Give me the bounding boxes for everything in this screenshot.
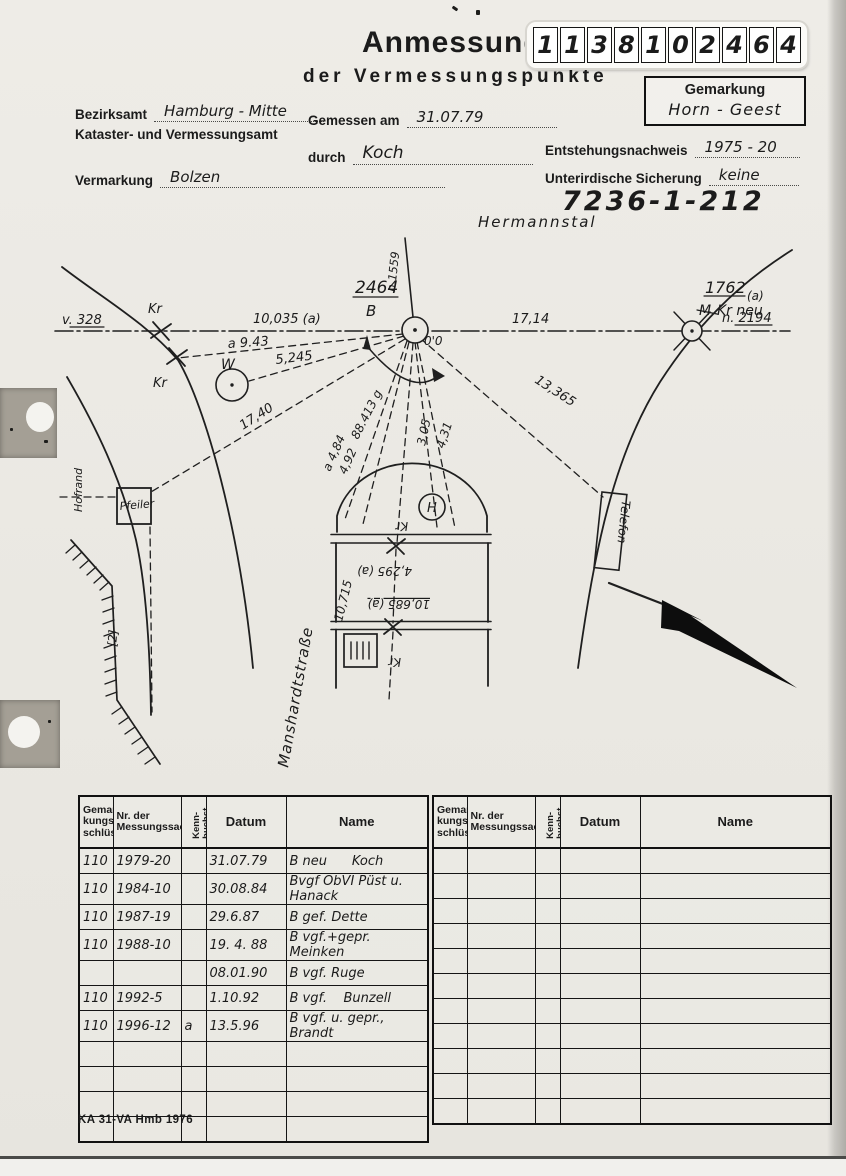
form-title: Anmessung [362, 26, 543, 60]
label-slope-2: [2] [105, 629, 120, 647]
entstehung-field: Entstehungsnachweis 1975 - 20 [545, 138, 800, 158]
label-w: W [221, 357, 236, 373]
label-1762-a: (a) [747, 289, 764, 303]
sicherung-value: keine [709, 166, 799, 186]
col-name: Name [286, 796, 428, 848]
durch-field: durch Koch [308, 143, 533, 165]
label-13365: 13,365 [532, 373, 578, 410]
scan-speck [452, 6, 459, 12]
vermarkung-label: Vermarkung [75, 173, 153, 188]
gemessen-label: Gemessen am [308, 113, 400, 128]
scanned-survey-form: { "header": { "title": "Anmessung", "sub… [0, 0, 846, 1176]
table-row-empty [433, 924, 831, 949]
gemessen-field: Gemessen am 31.07.79 [308, 108, 557, 128]
entstehung-label: Entstehungsnachweis [545, 143, 688, 158]
angle-arrowhead-start [363, 335, 371, 350]
kr-cross-marks [151, 322, 405, 635]
north-arrow-line [609, 583, 668, 606]
vermarkung-value: Bolzen [160, 168, 445, 188]
label-kr-neu: Kr neu [717, 303, 763, 319]
table-row-empty [79, 1067, 428, 1092]
label-431: 4,31 [434, 420, 456, 450]
label-4295: 4,295 (a) [357, 564, 412, 578]
table-row: 1101992-51.10.92B vgf. Bunzell [79, 986, 428, 1011]
digit-cell: 6 [749, 27, 774, 63]
digit-cell: 8 [614, 27, 639, 63]
measurement-table-right: Gemar- kungs- schlüssel Nr. der Messungs… [432, 795, 832, 1125]
table-row-empty [433, 1049, 831, 1074]
point-number-strip: 1 1 3 8 1 0 2 4 6 4 [527, 22, 807, 68]
col-messungssache: Nr. der Messungssache [467, 796, 535, 848]
col-gemarkungsschluessel: Gemar- kungs- schlüssel [433, 796, 467, 848]
sicherung-label: Unterirdische Sicherung [545, 171, 702, 186]
table-row-empty [433, 874, 831, 899]
digit-cell: 1 [560, 27, 585, 63]
table-row-empty [433, 899, 831, 924]
label-kr-lower: Kr [387, 655, 401, 669]
col-kennbuchst: Kenn- buchst. [535, 796, 560, 848]
label-kr-dome: Kr [394, 519, 409, 534]
gemarkung-box: Gemarkung Horn - Geest [644, 76, 806, 126]
label-zero-direction: 0'0 [424, 334, 443, 348]
table-header-row: Gemar- kungs- schlüssel Nr. der Messungs… [433, 796, 831, 848]
vermarkung-field: Vermarkung Bolzen [75, 168, 445, 188]
scan-speck [476, 10, 480, 15]
building-sides-bottom [336, 630, 488, 689]
digit-cell: 3 [587, 27, 612, 63]
angle-arrowhead-end [432, 368, 445, 382]
embankment-line [71, 540, 160, 764]
label-hofrand: Hofrand [72, 467, 85, 512]
digit-cell: 4 [776, 27, 801, 63]
building-wall-lower [331, 622, 491, 630]
label-1762-old: M [699, 303, 711, 319]
label-88413g: 88.413 g [348, 387, 385, 441]
col-datum: Datum [560, 796, 640, 848]
col-datum: Datum [206, 796, 286, 848]
label-telefon: Telefon [615, 500, 633, 544]
form-code: KA 31-VA Hmb 1976 [78, 1114, 193, 1126]
table-row-empty [79, 1092, 428, 1117]
gemarkung-label: Gemarkung [652, 82, 798, 98]
table-row: 1101996-12a13.5.96B vgf. u. gepr., Brand… [79, 1011, 428, 1042]
amt-line: Kataster- und Vermessungsamt [75, 127, 278, 142]
table-row-empty [433, 848, 831, 874]
digit-cell: 2 [695, 27, 720, 63]
durch-label: durch [308, 150, 346, 165]
bezirksamt-value: Hamburg - Mitte [154, 102, 324, 122]
label-point-b: B [366, 302, 376, 320]
digit-cell: 1 [641, 27, 666, 63]
street-name-hermannstal: Hermannstal [478, 213, 597, 231]
label-5245: 5,245 [275, 349, 314, 368]
scanner-background [0, 1159, 846, 1176]
table-row: 1101987-1929.6.87B gef. Dette [79, 905, 428, 930]
digit-cell: 0 [668, 27, 693, 63]
gemessen-value: 31.07.79 [407, 108, 557, 128]
street-name-manshardtstrasse: Manshardtstraße [274, 625, 316, 768]
table-row-empty [433, 1024, 831, 1049]
form-subtitle: der Vermessungspunkte [303, 66, 608, 88]
table-row: 1101988-1019. 4. 88B vgf.+gepr. Meinken [79, 930, 428, 961]
building-wall-upper [331, 535, 491, 544]
line-n1559 [405, 238, 413, 317]
col-name: Name [640, 796, 831, 848]
durch-value: Koch [353, 143, 533, 165]
hatch-box [344, 634, 377, 667]
digit-cell: 4 [722, 27, 747, 63]
table-row-empty [433, 1099, 831, 1125]
gemarkung-value: Horn - Geest [652, 100, 798, 119]
label-v328: v. 328 [62, 313, 102, 328]
col-kennbuchst: Kenn- buchst. [181, 796, 206, 848]
table-row-empty [433, 999, 831, 1024]
table-row-empty [433, 1074, 831, 1099]
col-gemarkungsschluessel: Gemar- kungs- schlüssel [79, 796, 113, 848]
dome-outline [337, 463, 487, 532]
label-point-1762: 1762 [705, 278, 746, 297]
bezirksamt-field: Bezirksamt Hamburg - Mitte [75, 102, 324, 122]
measurement-table-left: Gemar- kungs- schlüssel Nr. der Messungs… [78, 795, 429, 1143]
sicherung-field: Unterirdische Sicherung keine [545, 166, 799, 186]
road-curve-left-inner [67, 377, 151, 715]
label-1714: 17,14 [512, 312, 549, 327]
angle-arc [367, 346, 438, 383]
label-305: 3,05 [414, 418, 433, 447]
table-row: 08.01.90B vgf. Ruge [79, 961, 428, 986]
label-point-2464: 2464 [355, 278, 398, 298]
measurement-rays [60, 334, 603, 712]
table-row: 1101979-2031.07.79B neu Koch [79, 848, 428, 874]
table-row-empty [433, 949, 831, 974]
label-10715: 10,715 [331, 579, 355, 623]
table-row-empty [79, 1042, 428, 1067]
label-10685: 10,685 (a) [367, 597, 430, 611]
table-header-row: Gemar- kungs- schlüssel Nr. der Messungs… [79, 796, 428, 848]
bezirksamt-label: Bezirksamt [75, 107, 147, 122]
table-row: 1101984-1030.08.84Bvgf ÖbVI Püst u. Hana… [79, 874, 428, 905]
north-arrow [661, 600, 797, 688]
label-kr-bottom: Kr [153, 376, 169, 391]
entstehung-value: 1975 - 20 [695, 138, 800, 158]
table-row-empty [433, 974, 831, 999]
digit-cell: 1 [533, 27, 558, 63]
survey-sketch: Hermannstal Manshardtstraße n.1559 v. 32… [0, 195, 846, 795]
label-h: H [427, 501, 437, 516]
label-943: a 9.43 [227, 334, 269, 352]
label-10035: 10,035 (a) [253, 312, 321, 327]
col-messungssache: Nr. der Messungssache [113, 796, 181, 848]
label-kr-top: Kr [148, 302, 164, 317]
